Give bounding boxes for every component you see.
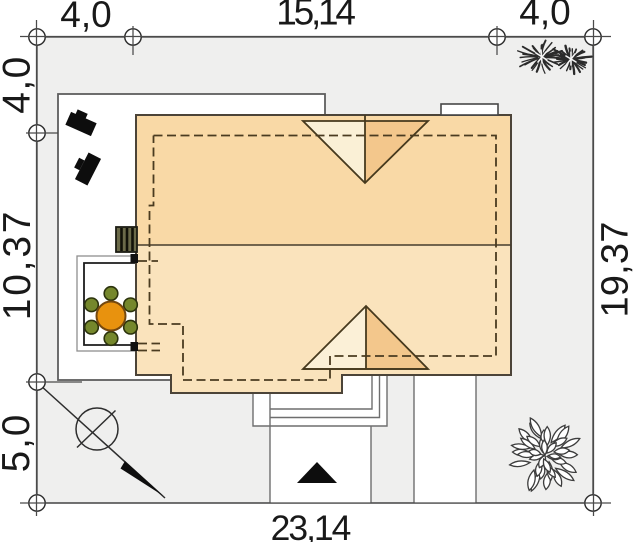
svg-text:15,14: 15,14 (276, 0, 355, 33)
svg-text:10,37: 10,37 (0, 209, 39, 321)
svg-text:4,0: 4,0 (519, 0, 570, 33)
svg-text:4,0: 4,0 (0, 55, 39, 113)
svg-text:23,14: 23,14 (271, 508, 351, 542)
svg-text:4,0: 4,0 (60, 0, 111, 35)
svg-text:5,0: 5,0 (0, 413, 38, 473)
svg-text:19,37: 19,37 (595, 221, 634, 317)
